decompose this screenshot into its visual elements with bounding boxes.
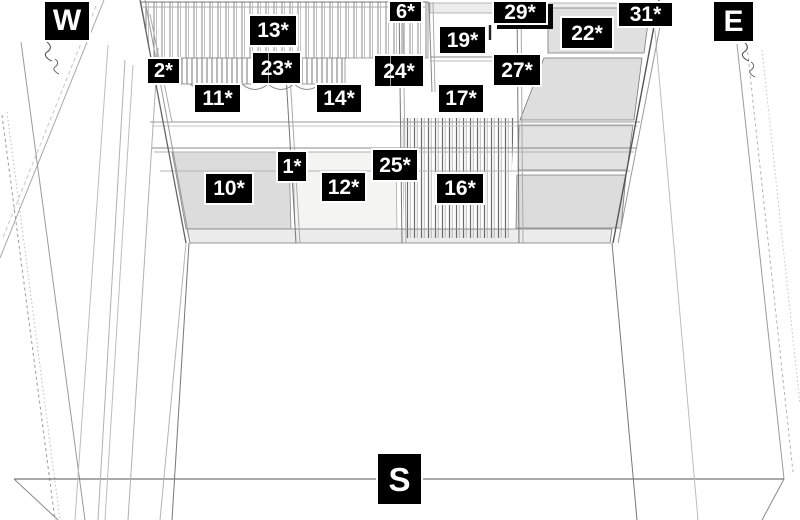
east-panel-4	[516, 175, 626, 228]
marker-label: 23*	[261, 58, 293, 79]
marker-19: 19*	[438, 25, 487, 55]
compass-east: E	[712, 0, 755, 43]
marker-22: 22*	[560, 16, 614, 50]
marker-31: 31*	[617, 1, 674, 28]
west-wall-lines	[0, 0, 104, 520]
marker-11: 11*	[193, 83, 242, 114]
marker-24: 24*	[373, 54, 425, 88]
marker-label: 24*	[383, 61, 415, 82]
marker-25: 25*	[371, 148, 419, 182]
floor-lines	[14, 30, 784, 520]
marker-6: 6*	[388, 0, 423, 23]
marker-27: 27*	[492, 53, 542, 87]
marker-14: 14*	[315, 83, 363, 114]
bottom-fascia	[187, 229, 612, 243]
marker-2: 2*	[146, 57, 181, 85]
perspective-plan-view: W E S 6* 29* 31* 13* 19* 22* 2* 23* 24* …	[0, 0, 800, 520]
compass-south: S	[376, 452, 423, 506]
marker-17: 17*	[437, 83, 485, 114]
marker-13: 13*	[248, 14, 298, 47]
marker-23: 23*	[251, 51, 302, 85]
marker-10: 10*	[204, 172, 254, 205]
marker-1: 1*	[276, 150, 308, 183]
marker-16: 16*	[435, 172, 485, 205]
marker-12: 12*	[320, 171, 367, 203]
east-wall-lines	[737, 42, 800, 479]
compass-west: W	[43, 0, 91, 42]
marker-29: 29*	[492, 0, 548, 25]
